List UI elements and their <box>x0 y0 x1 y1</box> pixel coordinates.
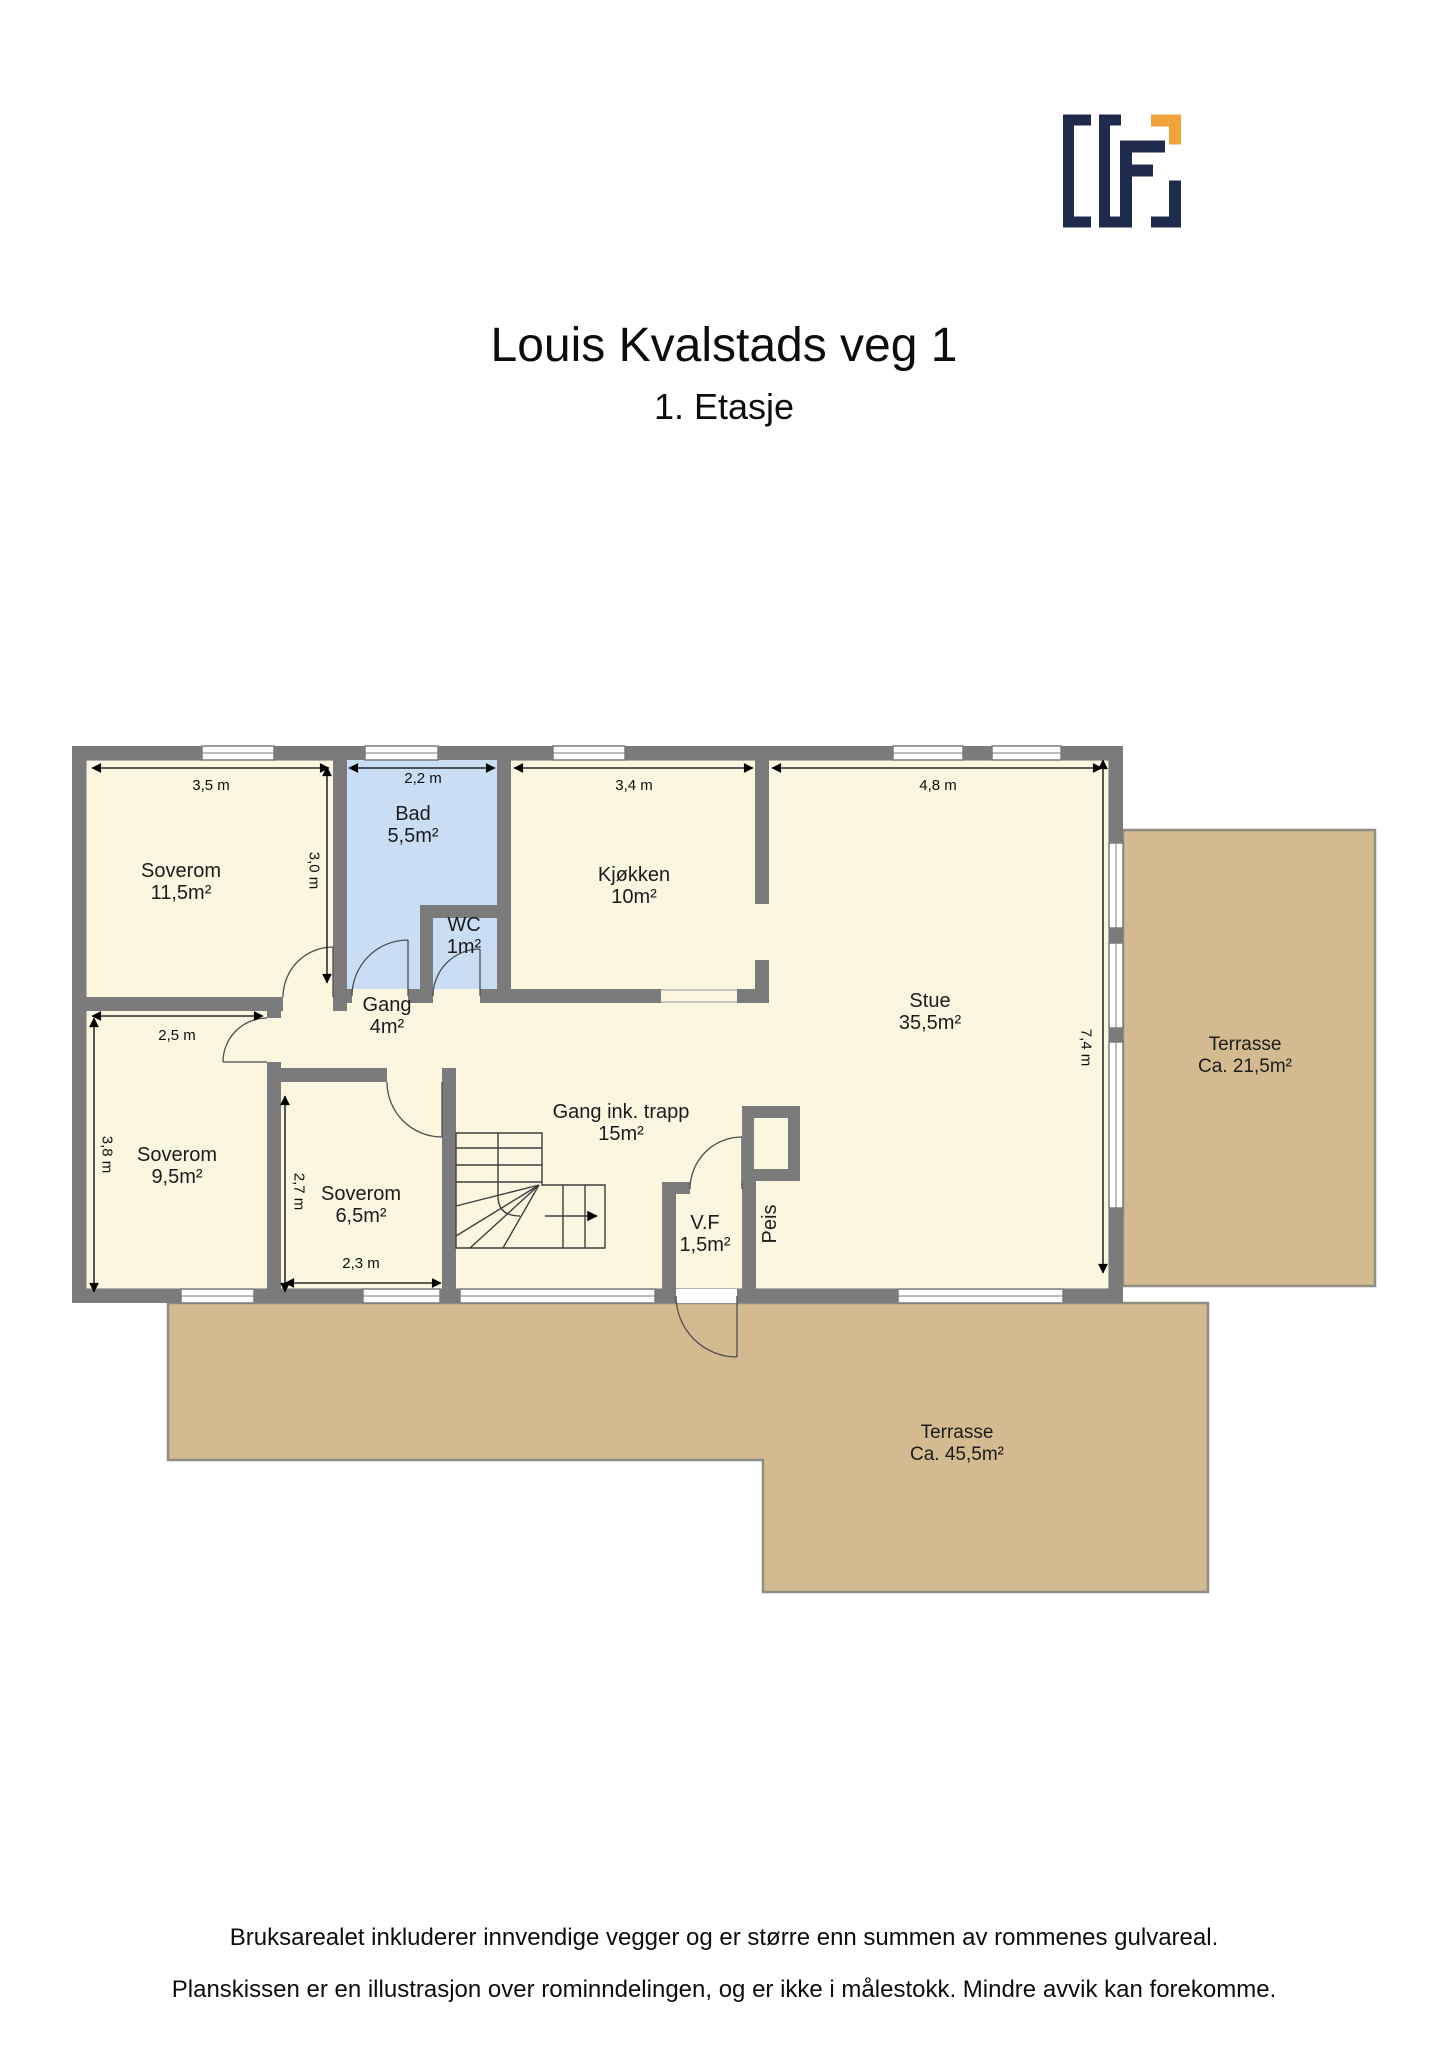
room-label-gang-trapp: Gang ink. trapp 15m² <box>511 1101 731 1145</box>
room-name: V.F <box>690 1212 719 1234</box>
room-label-wc: WC 1m² <box>384 914 544 958</box>
dim-3-0: 3,0 m <box>306 831 323 911</box>
room-area: 5,5m² <box>387 825 438 847</box>
room-label-terrasse-south: Terrasse Ca. 45,5m² <box>847 1422 1067 1466</box>
room-label-gang: Gang 4m² <box>307 994 467 1038</box>
room-name: Terrasse <box>1209 1034 1282 1055</box>
dim-3-5: 3,5 m <box>171 777 251 794</box>
dim-4-8: 4,8 m <box>898 777 978 794</box>
room-name: Kjøkken <box>598 864 670 886</box>
room-label-stue: Stue 35,5m² <box>850 990 1010 1034</box>
room-area: 6,5m² <box>335 1205 386 1227</box>
room-name: Stue <box>909 990 950 1012</box>
footer-note-2: Planskissen er en illustrasjon over romi… <box>0 1976 1448 2004</box>
room-area: 1,5m² <box>679 1234 730 1256</box>
entry-threshold <box>676 1289 737 1303</box>
room-area: 11,5m² <box>151 882 212 904</box>
wall-kjokken-stue <box>755 760 769 904</box>
dim-2-7: 2,7 m <box>291 1152 308 1232</box>
room-area: 10m² <box>611 886 657 908</box>
floor-plan <box>0 0 1448 1700</box>
room-label-terrasse-east: Terrasse Ca. 21,5m² <box>1135 1034 1355 1078</box>
room-area: Ca. 45,5m² <box>910 1444 1004 1465</box>
room-name: Soverom <box>137 1144 217 1166</box>
room-name: Soverom <box>141 860 221 882</box>
room-area: 15m² <box>598 1123 644 1145</box>
room-area: 4m² <box>370 1016 404 1038</box>
room-label-soverom-9: Soverom 9,5m² <box>97 1144 257 1188</box>
room-name: Gang ink. trapp <box>553 1101 690 1123</box>
room-name: Gang <box>363 994 412 1016</box>
dim-3-4: 3,4 m <box>594 777 674 794</box>
wall-bad-kjokken <box>497 760 511 1003</box>
room-name: Terrasse <box>921 1422 994 1443</box>
room-name: Bad <box>395 803 431 825</box>
dim-2-5: 2,5 m <box>137 1027 217 1044</box>
room-area: 1m² <box>447 936 481 958</box>
room-label-peis: Peis <box>759 1144 781 1304</box>
room-label-soverom-11: Soverom 11,5m² <box>101 860 261 904</box>
room-name: Soverom <box>321 1183 401 1205</box>
dim-7-4: 7,4 m <box>1078 1008 1095 1088</box>
room-area: 35,5m² <box>899 1012 961 1034</box>
dim-2-2: 2,2 m <box>383 770 463 787</box>
dim-2-3: 2,3 m <box>321 1255 401 1272</box>
dim-3-8: 3,8 m <box>99 1115 116 1195</box>
room-label-bad: Bad 5,5m² <box>333 803 493 847</box>
room-name: Peis <box>759 1205 781 1244</box>
room-area: 9,5m² <box>151 1166 202 1188</box>
footer-note-1: Bruksarealet inkluderer innvendige vegge… <box>0 1924 1448 1952</box>
room-area: Ca. 21,5m² <box>1198 1056 1292 1077</box>
room-name: WC <box>447 914 480 936</box>
room-label-kjokken: Kjøkken 10m² <box>554 864 714 908</box>
wall-soverom-bad <box>333 760 347 1003</box>
